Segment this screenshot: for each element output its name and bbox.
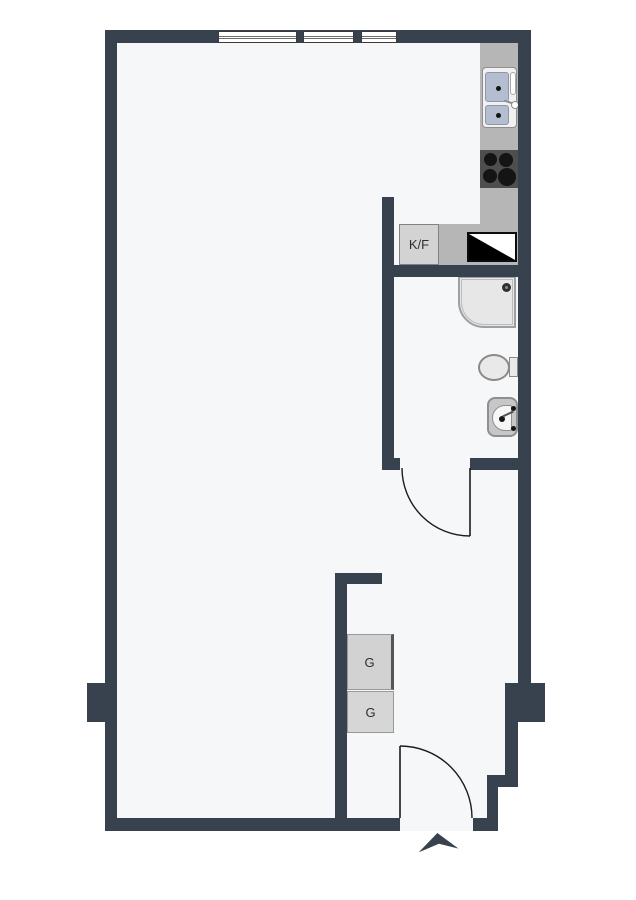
wall-right-lower [505,722,518,775]
burner [484,153,497,166]
shower-symbol [458,276,516,328]
burner [483,169,497,183]
wall-hall-partition-stub [335,573,382,584]
dishwasher-symbol [467,232,517,262]
tap-icon [511,426,516,431]
drain-icon [496,113,501,118]
wall-left [105,30,117,831]
window-symbol [218,31,297,43]
wardrobe-lower: G [347,691,394,733]
floor-entry-door-opening [400,818,473,831]
wardrobe-label: G [365,706,375,719]
wall-right-upper [518,30,531,683]
wall-right-pier [505,683,545,722]
dishwasher-triangle-icon [469,234,515,260]
washbasin-symbol [487,397,518,437]
toilet-symbol [478,354,510,381]
wall-left-pier [87,683,105,722]
wall-partition-kitchen-bath [382,197,394,470]
burner [499,153,513,167]
wall-right-step-horizontal [487,775,518,787]
shower-drain-icon [502,283,511,292]
wardrobe-label: G [364,656,374,669]
wall-bottom-left [105,818,400,831]
stove-symbol [480,150,518,188]
fridge-freezer-label: K/F [409,238,429,251]
wall-kitchen-bath-horizontal [382,265,531,277]
sink-basin-upper [485,72,509,102]
kitchen-sink-symbol [482,67,517,128]
burner [498,168,516,186]
wall-bath-south-right [470,458,518,470]
toilet-tank [509,357,518,377]
wall-bath-door-jamb-left [382,458,400,470]
fridge-freezer-cabinet: K/F [399,224,439,265]
window-symbol [303,31,354,43]
floor-plan-canvas: K/F G G [0,0,636,900]
floor-hall [117,787,487,818]
sink-basin-lower [485,105,509,125]
north-arrow-icon [417,832,458,853]
window-symbol [361,31,397,43]
wardrobe-upper: G [347,634,394,690]
sink-drainboard [510,72,516,95]
wall-bottom-right [473,818,498,831]
drain-icon [496,86,501,91]
wall-right-step-vertical [487,787,498,818]
floor-main [117,43,518,787]
wall-hall-partition [335,573,347,818]
